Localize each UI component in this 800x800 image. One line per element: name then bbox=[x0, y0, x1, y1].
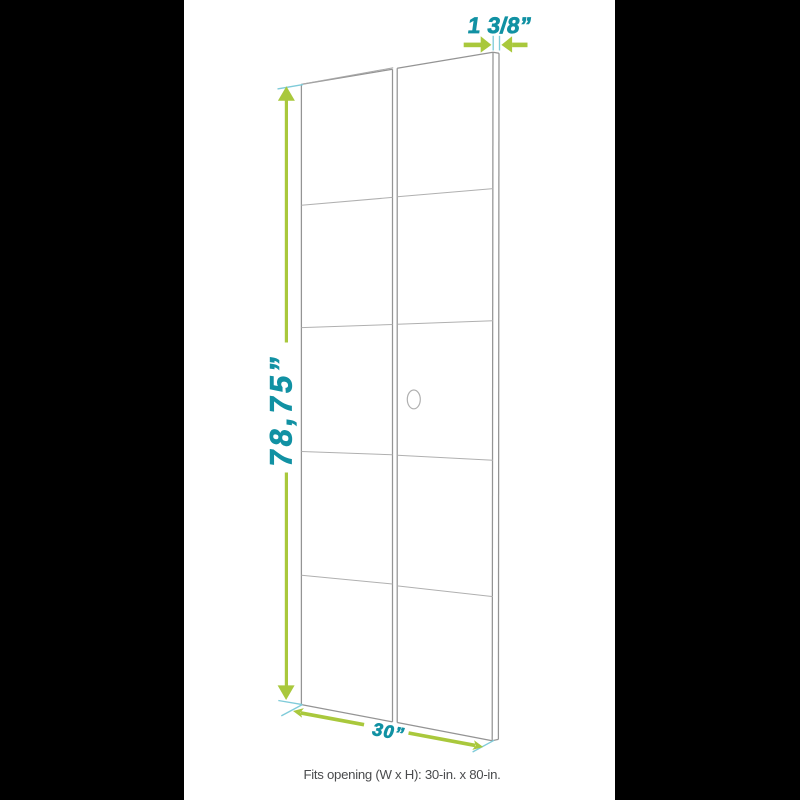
svg-text:78,75”: 78,75” bbox=[264, 351, 299, 469]
svg-text:1 3/8”: 1 3/8” bbox=[466, 13, 533, 38]
svg-text:Fits opening (W x H): 30-in. x: Fits opening (W x H): 30-in. x 80-in. bbox=[303, 767, 500, 782]
